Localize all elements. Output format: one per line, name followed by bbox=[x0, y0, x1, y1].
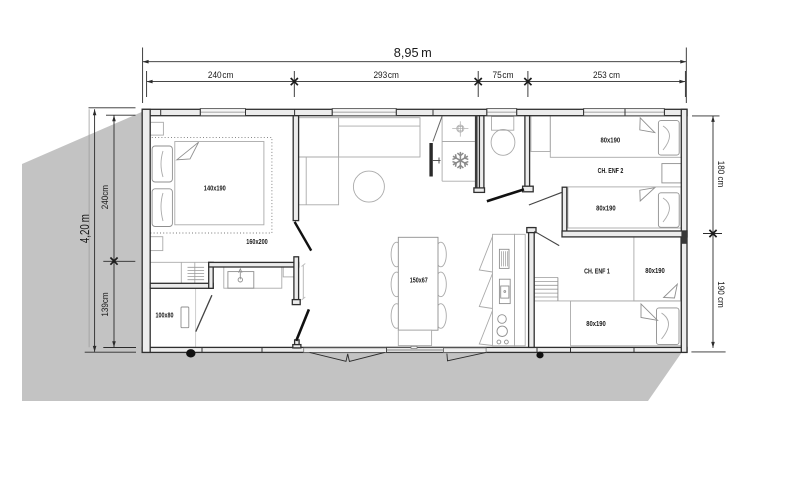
svg-text:240 cm: 240 cm bbox=[208, 70, 234, 80]
svg-text:253 cm: 253 cm bbox=[593, 70, 620, 80]
svg-text:160x200: 160x200 bbox=[246, 237, 268, 246]
svg-text:80x190: 80x190 bbox=[645, 266, 665, 275]
svg-text:80x190: 80x190 bbox=[601, 135, 621, 144]
svg-text:75 cm: 75 cm bbox=[493, 70, 514, 80]
svg-text:139cm: 139cm bbox=[100, 292, 110, 316]
svg-text:CH. ENF 2: CH. ENF 2 bbox=[598, 166, 624, 175]
svg-text:190 cm: 190 cm bbox=[716, 281, 726, 308]
svg-text:80x190: 80x190 bbox=[586, 319, 606, 328]
svg-text:293 cm: 293 cm bbox=[373, 70, 399, 80]
svg-text:80x190: 80x190 bbox=[596, 204, 616, 213]
svg-text:150x67: 150x67 bbox=[410, 276, 428, 285]
svg-text:8,95 m: 8,95 m bbox=[394, 45, 432, 60]
svg-text:240cm: 240cm bbox=[100, 185, 110, 209]
svg-text:100x80: 100x80 bbox=[156, 310, 174, 319]
svg-text:180 cm: 180 cm bbox=[716, 161, 726, 188]
svg-text:140x190: 140x190 bbox=[204, 183, 226, 192]
svg-text:CH. ENF 1: CH. ENF 1 bbox=[584, 266, 610, 275]
svg-text:4,20 m: 4,20 m bbox=[78, 214, 92, 243]
